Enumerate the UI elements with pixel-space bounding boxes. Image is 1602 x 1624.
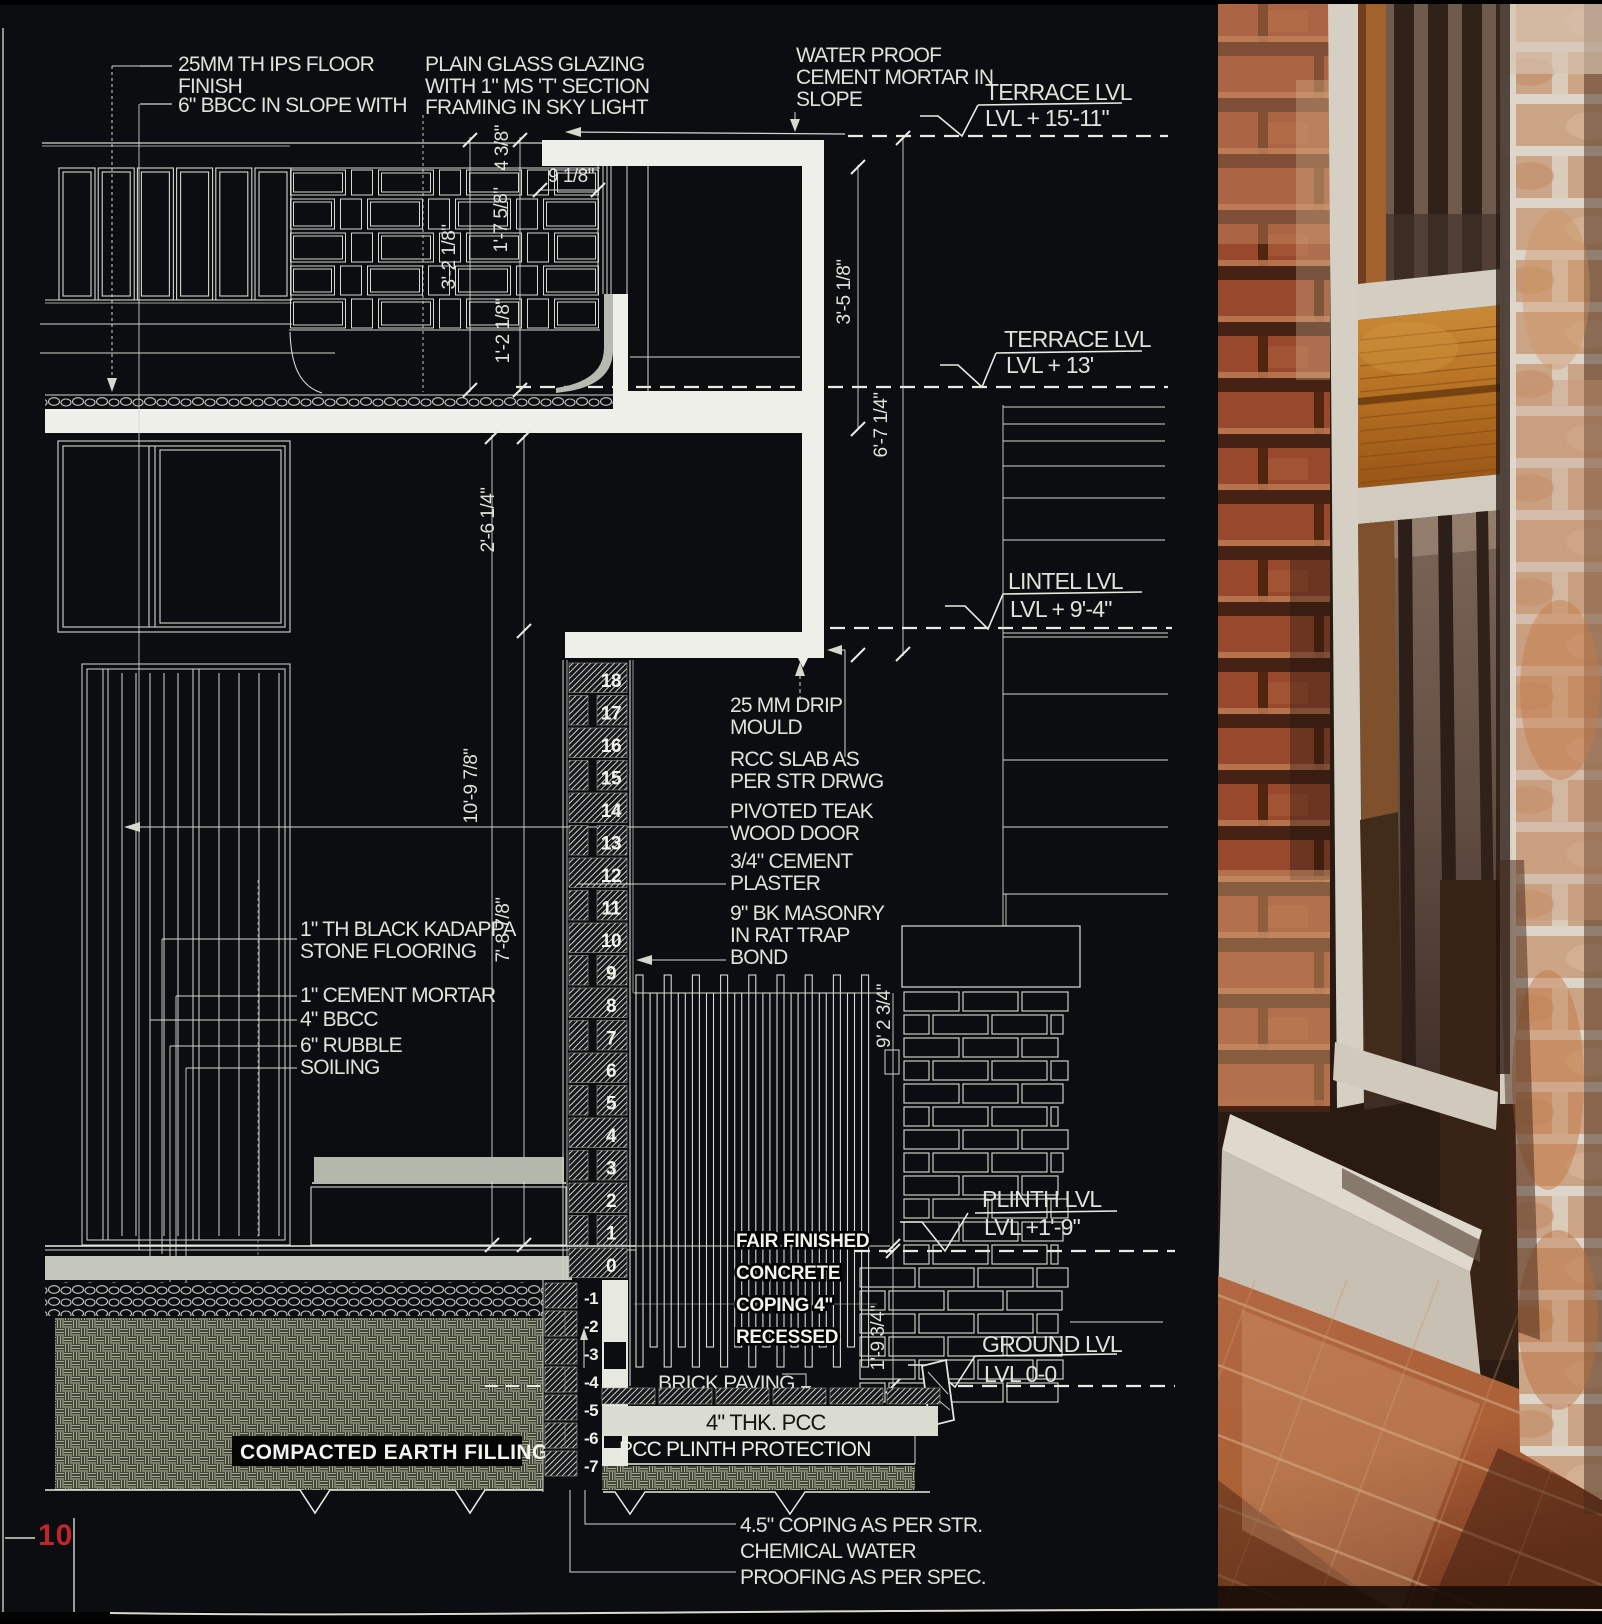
svg-text:PCC PLINTH PROTECTION: PCC PLINTH PROTECTION bbox=[619, 1438, 871, 1461]
svg-text:SOILING: SOILING bbox=[300, 1056, 380, 1079]
svg-text:WATER PROOF: WATER PROOF bbox=[796, 44, 941, 67]
svg-text:-6: -6 bbox=[584, 1429, 598, 1448]
svg-text:25 MM DRIP: 25 MM DRIP bbox=[730, 694, 842, 717]
svg-text:PIVOTED TEAK: PIVOTED TEAK bbox=[730, 800, 874, 823]
svg-text:18: 18 bbox=[601, 671, 621, 692]
svg-text:LVL 0-0: LVL 0-0 bbox=[984, 1361, 1056, 1387]
svg-text:9' 2 3/4": 9' 2 3/4" bbox=[874, 984, 895, 1048]
svg-text:17: 17 bbox=[601, 704, 621, 725]
svg-text:25MM TH IPS FLOOR: 25MM TH IPS FLOOR bbox=[178, 53, 375, 76]
svg-text:PLAIN GLASS GLAZING: PLAIN GLASS GLAZING bbox=[425, 53, 644, 76]
svg-text:-2: -2 bbox=[584, 1317, 598, 1336]
svg-text:9 1/8": 9 1/8" bbox=[548, 166, 594, 187]
svg-text:GROUND LVL: GROUND LVL bbox=[982, 1331, 1123, 1357]
svg-text:3'-2 1/8": 3'-2 1/8" bbox=[439, 224, 460, 289]
svg-text:5: 5 bbox=[606, 1094, 617, 1115]
svg-text:1" CEMENT MORTAR: 1" CEMENT MORTAR bbox=[300, 984, 496, 1007]
svg-text:13: 13 bbox=[601, 834, 621, 855]
svg-text:15: 15 bbox=[601, 769, 622, 790]
svg-text:7: 7 bbox=[606, 1029, 616, 1050]
svg-text:11: 11 bbox=[601, 899, 621, 920]
svg-text:MOULD: MOULD bbox=[730, 716, 802, 739]
svg-text:3: 3 bbox=[606, 1159, 616, 1180]
svg-text:COPING 4": COPING 4" bbox=[736, 1295, 833, 1316]
svg-text:LVL + 15'-11": LVL + 15'-11" bbox=[985, 105, 1109, 131]
svg-text:BOND: BOND bbox=[730, 946, 788, 969]
svg-text:CONCRETE: CONCRETE bbox=[736, 1263, 840, 1284]
svg-text:3/4" CEMENT: 3/4" CEMENT bbox=[730, 850, 853, 873]
svg-text:6" RUBBLE: 6" RUBBLE bbox=[300, 1034, 403, 1057]
svg-text:TERRACE LVL: TERRACE LVL bbox=[1004, 326, 1152, 352]
svg-text:6" BBCC IN SLOPE WITH: 6" BBCC IN SLOPE WITH bbox=[178, 94, 407, 117]
svg-text:6: 6 bbox=[606, 1061, 616, 1082]
svg-text:CHEMICAL WATER: CHEMICAL WATER bbox=[740, 1540, 916, 1563]
svg-text:4: 4 bbox=[606, 1126, 617, 1147]
svg-text:-3: -3 bbox=[584, 1345, 598, 1364]
svg-text:4 3/8": 4 3/8" bbox=[492, 125, 513, 171]
svg-text:4" THK. PCC: 4" THK. PCC bbox=[706, 1410, 827, 1435]
svg-text:WITH 1" MS 'T' SECTION: WITH 1" MS 'T' SECTION bbox=[425, 75, 649, 98]
svg-text:1'-2 1/8": 1'-2 1/8" bbox=[493, 298, 514, 363]
svg-text:FAIR FINISHED: FAIR FINISHED bbox=[736, 1231, 869, 1252]
svg-text:9: 9 bbox=[606, 964, 616, 985]
svg-text:-7: -7 bbox=[584, 1457, 598, 1476]
svg-text:10'-9 7/8": 10'-9 7/8" bbox=[461, 748, 482, 823]
svg-text:RECESSED: RECESSED bbox=[736, 1327, 838, 1348]
svg-text:-5: -5 bbox=[584, 1401, 598, 1420]
svg-text:WOOD DOOR: WOOD DOOR bbox=[730, 822, 860, 845]
svg-text:LVL + 13': LVL + 13' bbox=[1006, 352, 1094, 378]
svg-text:LVL + 9'-4": LVL + 9'-4" bbox=[1010, 596, 1112, 622]
svg-text:6'-7 1/4": 6'-7 1/4" bbox=[871, 392, 892, 457]
svg-text:COMPACTED EARTH FILLING: COMPACTED EARTH FILLING bbox=[240, 1441, 549, 1464]
svg-text:PLINTH LVL: PLINTH LVL bbox=[982, 1186, 1102, 1212]
svg-text:14: 14 bbox=[601, 801, 622, 822]
svg-text:0: 0 bbox=[606, 1256, 616, 1277]
svg-text:1: 1 bbox=[606, 1224, 617, 1245]
svg-text:PLASTER: PLASTER bbox=[730, 872, 821, 895]
svg-text:10: 10 bbox=[38, 1519, 73, 1552]
svg-text:3'-5 1/8": 3'-5 1/8" bbox=[834, 259, 855, 324]
svg-text:9" BK MASONRY: 9" BK MASONRY bbox=[730, 902, 885, 925]
svg-text:-4: -4 bbox=[584, 1373, 599, 1392]
svg-text:2'-6 1/4": 2'-6 1/4" bbox=[478, 487, 499, 552]
svg-text:FRAMING IN SKY LIGHT: FRAMING IN SKY LIGHT bbox=[425, 96, 649, 119]
svg-text:4" BBCC: 4" BBCC bbox=[300, 1008, 378, 1031]
svg-text:LVL +1'-9": LVL +1'-9" bbox=[984, 1214, 1081, 1240]
svg-text:8: 8 bbox=[606, 996, 616, 1017]
svg-text:STONE FLOORING: STONE FLOORING bbox=[300, 940, 476, 963]
svg-text:PER STR DRWG: PER STR DRWG bbox=[730, 770, 883, 793]
svg-text:CEMENT MORTAR IN: CEMENT MORTAR IN bbox=[796, 66, 993, 89]
svg-text:IN RAT TRAP: IN RAT TRAP bbox=[730, 924, 850, 947]
svg-text:SLOPE: SLOPE bbox=[796, 88, 863, 111]
svg-text:-1: -1 bbox=[584, 1289, 598, 1308]
svg-text:2: 2 bbox=[606, 1191, 616, 1212]
svg-text:1'-9 3/4": 1'-9 3/4" bbox=[868, 1305, 889, 1370]
svg-text:TERRACE LVL: TERRACE LVL bbox=[985, 79, 1133, 105]
svg-text:10: 10 bbox=[601, 931, 621, 952]
svg-text:PROOFING AS PER SPEC.: PROOFING AS PER SPEC. bbox=[740, 1566, 986, 1589]
svg-text:1'-7 5/8": 1'-7 5/8" bbox=[491, 187, 512, 252]
svg-text:1" TH BLACK KADAPPA: 1" TH BLACK KADAPPA bbox=[300, 918, 516, 941]
svg-text:4.5" COPING AS PER STR.: 4.5" COPING AS PER STR. bbox=[740, 1514, 982, 1537]
svg-text:RCC SLAB AS: RCC SLAB AS bbox=[730, 748, 860, 771]
svg-text:LINTEL LVL: LINTEL LVL bbox=[1008, 568, 1124, 594]
svg-text:16: 16 bbox=[601, 736, 621, 757]
